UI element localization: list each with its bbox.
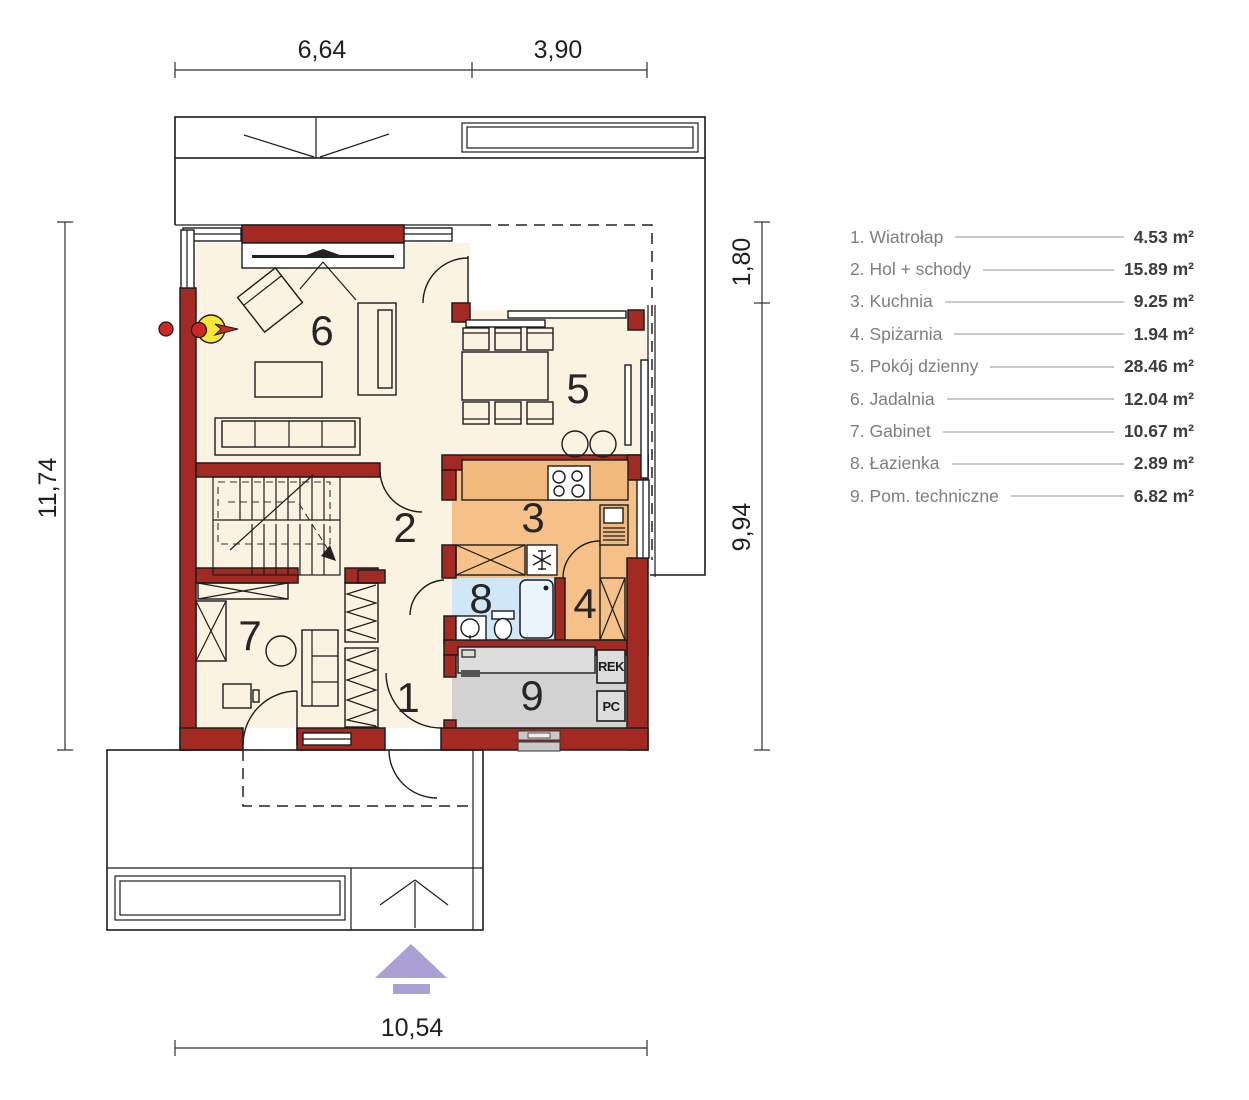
legend-row-9: 9. Pom. techniczne 6.82 m² bbox=[850, 480, 1194, 512]
legend-row-6: 6. Jadalnia 12.04 m² bbox=[850, 383, 1194, 415]
dim-180: 1,80 bbox=[728, 238, 756, 287]
window-room5-top-b bbox=[466, 320, 545, 327]
floor-plan-drawing: REK PC bbox=[0, 0, 1249, 1100]
window-top-second bbox=[404, 228, 452, 241]
rek-unit: REK bbox=[597, 650, 625, 683]
leader-line bbox=[955, 236, 1123, 238]
dim-1174: 11,74 bbox=[34, 458, 62, 519]
leader-line bbox=[945, 301, 1124, 303]
room-number-9: 9 bbox=[520, 672, 543, 719]
legend-area: 9.25 m² bbox=[1134, 291, 1194, 312]
room-legend: 1. Wiatrołap 4.53 m² 2. Hol + schody 15.… bbox=[850, 221, 1194, 513]
rek-label: REK bbox=[598, 659, 625, 674]
legend-row-4: 4. Spiżarnia 1.94 m² bbox=[850, 318, 1194, 350]
legend-label: 9. Pom. techniczne bbox=[850, 486, 999, 507]
window-left-corner bbox=[181, 230, 194, 288]
legend-label: 3. Kuchnia bbox=[850, 291, 933, 312]
legend-row-5: 5. Pokój dzienny 28.46 m² bbox=[850, 351, 1194, 383]
room-number-6: 6 bbox=[310, 307, 333, 354]
window-bottom-room7 bbox=[303, 733, 351, 745]
pc-label: PC bbox=[602, 699, 620, 714]
room-number-7: 7 bbox=[238, 612, 261, 659]
legend-label: 2. Hol + schody bbox=[850, 259, 971, 280]
dimension-top: 6,64 3,90 bbox=[175, 36, 647, 78]
leader-line bbox=[1011, 495, 1124, 497]
fridge-icon bbox=[527, 545, 557, 575]
entrance-arrow-icon bbox=[375, 944, 447, 994]
tech-counter bbox=[458, 647, 595, 673]
shower bbox=[520, 580, 553, 638]
dimension-right: 1,80 9,94 bbox=[728, 222, 770, 750]
legend-row-1: 1. Wiatrołap 4.53 m² bbox=[850, 221, 1194, 253]
legend-row-7: 7. Gabinet 10.67 m² bbox=[850, 415, 1194, 447]
room-number-8: 8 bbox=[469, 575, 492, 622]
sink-counter bbox=[600, 505, 628, 545]
legend-row-8: 8. Łazienka 2.89 m² bbox=[850, 448, 1194, 480]
room-number-4: 4 bbox=[573, 580, 596, 627]
legend-area: 10.67 m² bbox=[1124, 421, 1194, 442]
window-room5-top-a bbox=[508, 311, 626, 318]
room-number-1: 1 bbox=[396, 674, 419, 721]
leader-line bbox=[954, 333, 1123, 335]
room-number-5: 5 bbox=[566, 365, 589, 412]
legend-area: 1.94 m² bbox=[1134, 324, 1194, 345]
legend-area: 12.04 m² bbox=[1124, 389, 1194, 410]
legend-label: 7. Gabinet bbox=[850, 421, 931, 442]
dim-664: 6,64 bbox=[298, 36, 347, 64]
legend-label: 1. Wiatrołap bbox=[850, 227, 943, 248]
legend-area: 2.89 m² bbox=[1134, 453, 1194, 474]
legend-label: 4. Spiżarnia bbox=[850, 324, 942, 345]
legend-row-3: 3. Kuchnia 9.25 m² bbox=[850, 286, 1194, 318]
dim-994: 9,94 bbox=[728, 503, 756, 552]
legend-label: 8. Łazienka bbox=[850, 453, 940, 474]
kitchen-counter bbox=[462, 460, 628, 500]
dim-390: 3,90 bbox=[534, 36, 583, 64]
leader-line bbox=[990, 366, 1114, 368]
dimension-bottom: 10,54 bbox=[175, 1014, 647, 1056]
leader-line bbox=[952, 463, 1124, 465]
legend-label: 6. Jadalnia bbox=[850, 389, 935, 410]
dim-1054: 10,54 bbox=[381, 1014, 444, 1042]
room-number-3: 3 bbox=[521, 494, 544, 541]
legend-area: 4.53 m² bbox=[1134, 227, 1194, 248]
legend-area: 6.82 m² bbox=[1134, 486, 1194, 507]
leader-line bbox=[947, 398, 1114, 400]
legend-label: 5. Pokój dzienny bbox=[850, 356, 978, 377]
room-number-2: 2 bbox=[393, 504, 416, 551]
legend-area: 28.46 m² bbox=[1124, 356, 1194, 377]
stove-icon bbox=[548, 466, 590, 500]
chimney-dot bbox=[159, 322, 173, 336]
leader-line bbox=[983, 269, 1114, 271]
legend-area: 15.89 m² bbox=[1124, 259, 1194, 280]
pc-unit: PC bbox=[597, 691, 625, 721]
entrance-porch bbox=[107, 750, 483, 930]
window-kitchen-right bbox=[637, 480, 649, 558]
legend-row-2: 2. Hol + schody 15.89 m² bbox=[850, 253, 1194, 285]
dimension-left: 11,74 bbox=[34, 222, 73, 750]
floor-plan-page: REK PC bbox=[0, 0, 1249, 1100]
leader-line bbox=[943, 431, 1114, 433]
door-entrance-outside bbox=[389, 750, 437, 798]
